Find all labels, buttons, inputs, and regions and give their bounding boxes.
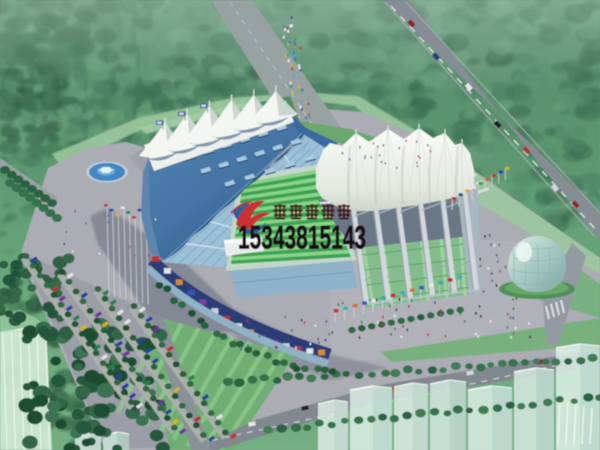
svg-text:15343815143: 15343815143 (238, 220, 366, 256)
